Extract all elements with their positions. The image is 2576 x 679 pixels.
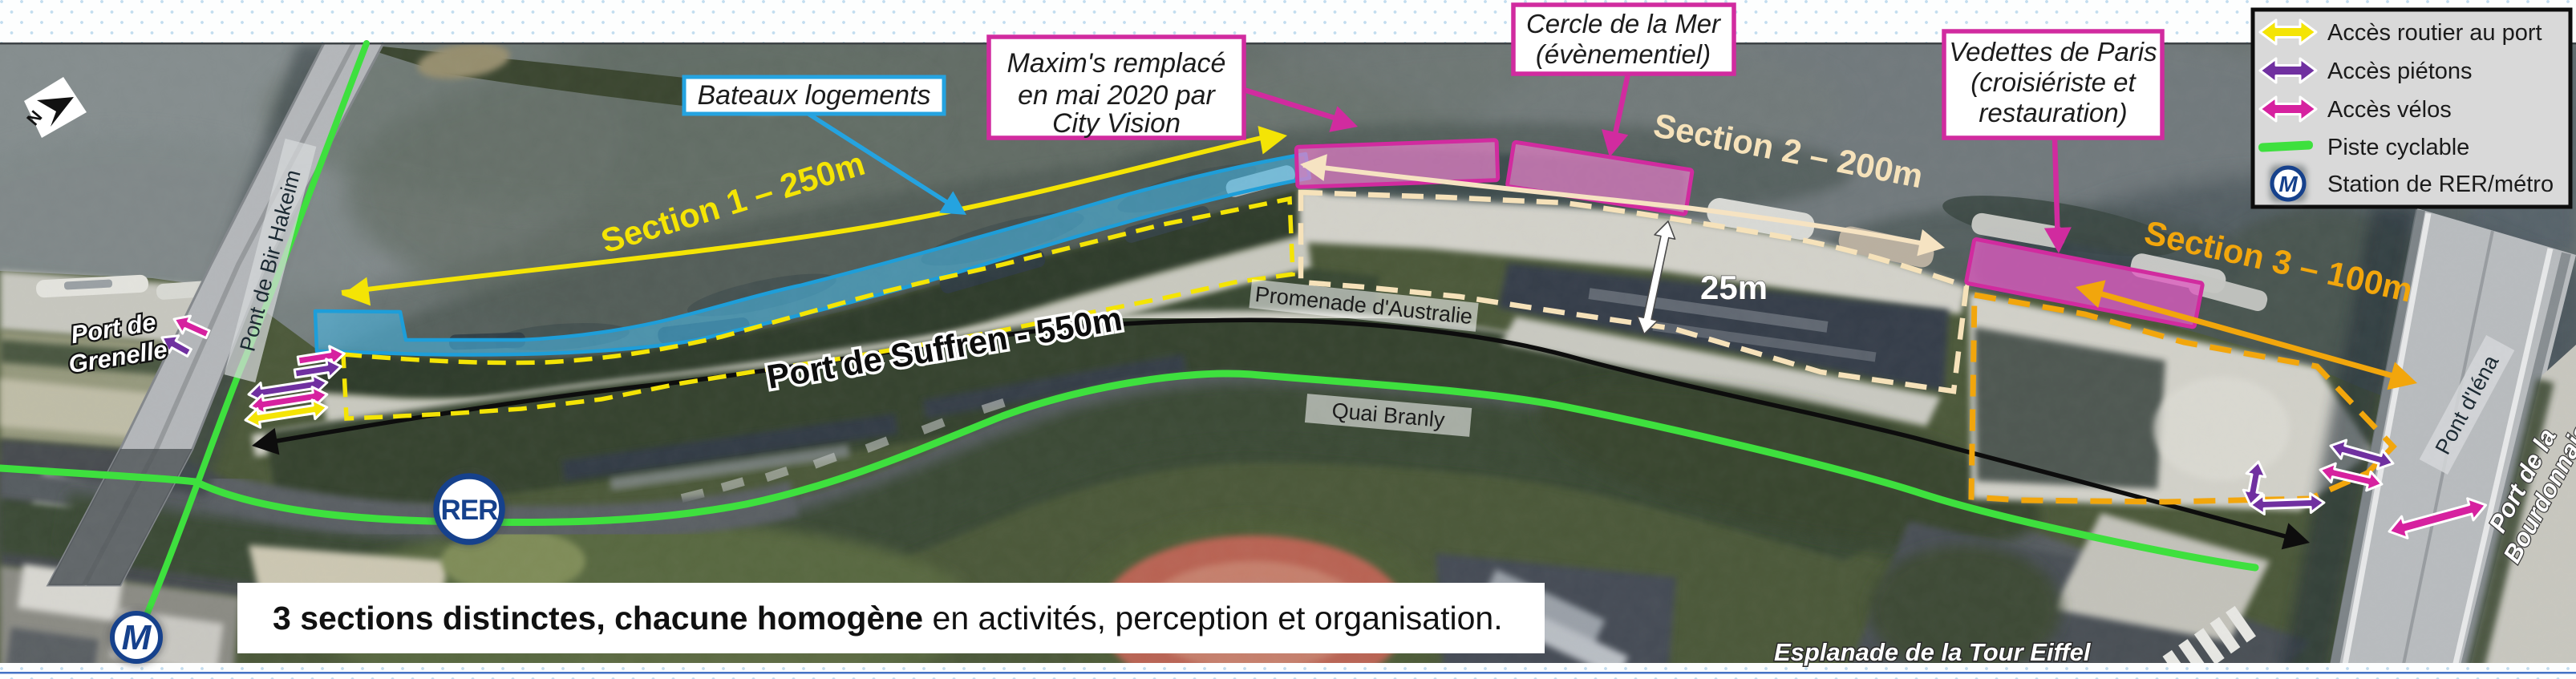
svg-text:Vedettes de Paris: Vedettes de Paris — [1949, 37, 2157, 67]
svg-text:Cercle de la Mer: Cercle de la Mer — [1526, 9, 1722, 38]
svg-text:Maxim's remplacé: Maxim's remplacé — [1007, 48, 1226, 79]
svg-text:City Vision: City Vision — [1052, 108, 1181, 139]
svg-text:Station de RER/métro: Station de RER/métro — [2327, 172, 2554, 197]
svg-text:Esplanade de la Tour Eiffel: Esplanade de la Tour Eiffel — [1774, 638, 2092, 666]
svg-text:(évènementiel): (évènementiel) — [1536, 39, 1711, 69]
svg-text:Accès piétons: Accès piétons — [2327, 59, 2473, 84]
svg-text:M: M — [2278, 172, 2298, 196]
svg-text:(croisiériste et: (croisiériste et — [1970, 67, 2137, 97]
svg-text:M: M — [122, 618, 152, 657]
svg-text:Piste cyclable: Piste cyclable — [2327, 135, 2469, 160]
svg-text:en mai 2020 par: en mai 2020 par — [1018, 80, 1216, 111]
svg-text:3 sections distinctes, chacune: 3 sections distinctes, chacune homogène … — [273, 600, 1503, 637]
svg-text:restauration): restauration) — [1979, 98, 2127, 127]
svg-text:25m: 25m — [1700, 269, 1768, 306]
svg-text:RER: RER — [441, 495, 499, 526]
svg-text:Bateaux logements: Bateaux logements — [697, 80, 930, 111]
svg-text:Accès routier au port: Accès routier au port — [2327, 20, 2542, 46]
svg-text:Accès vélos: Accès vélos — [2327, 97, 2452, 123]
